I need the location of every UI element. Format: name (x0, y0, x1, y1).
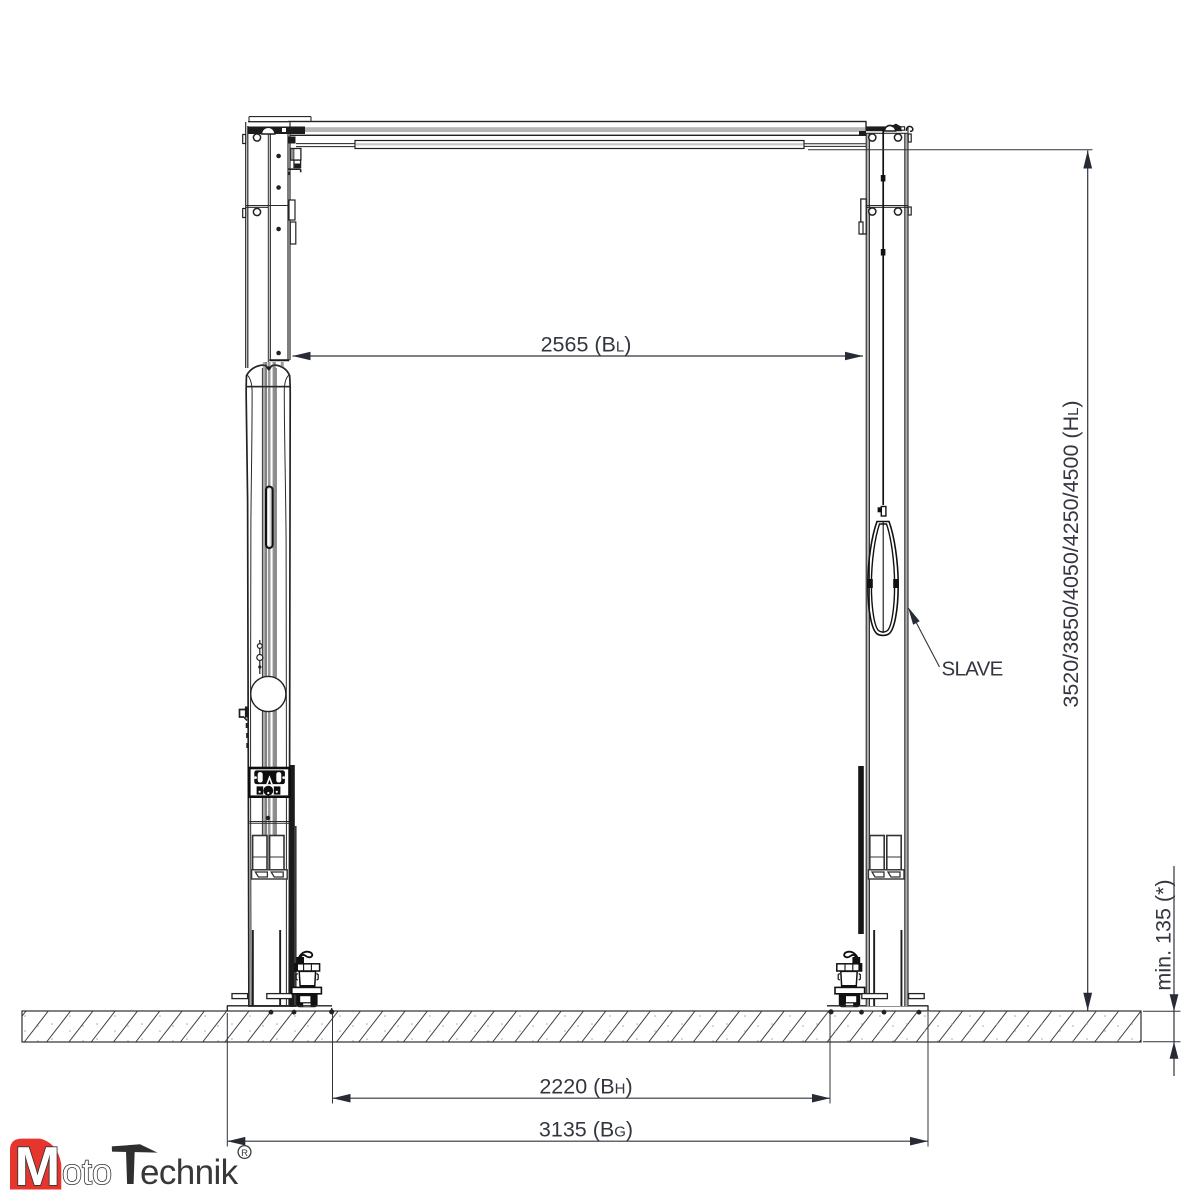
svg-text:3135 (BG): 3135 (BG) (539, 1118, 633, 1142)
svg-text:echnik: echnik (140, 1153, 239, 1192)
svg-text:M: M (15, 1135, 61, 1197)
svg-text:3520/3850/4050/4250/4500 (HL): 3520/3850/4050/4250/4500 (HL) (1059, 400, 1083, 707)
svg-text:R: R (241, 1148, 248, 1159)
svg-text:2565 (BL): 2565 (BL) (541, 333, 632, 357)
svg-text:SLAVE: SLAVE (942, 658, 1003, 681)
svg-text:oto: oto (62, 1151, 112, 1192)
svg-text:2220 (BH): 2220 (BH) (539, 1075, 632, 1099)
svg-text:min. 135 (*): min. 135 (*) (1152, 879, 1176, 990)
